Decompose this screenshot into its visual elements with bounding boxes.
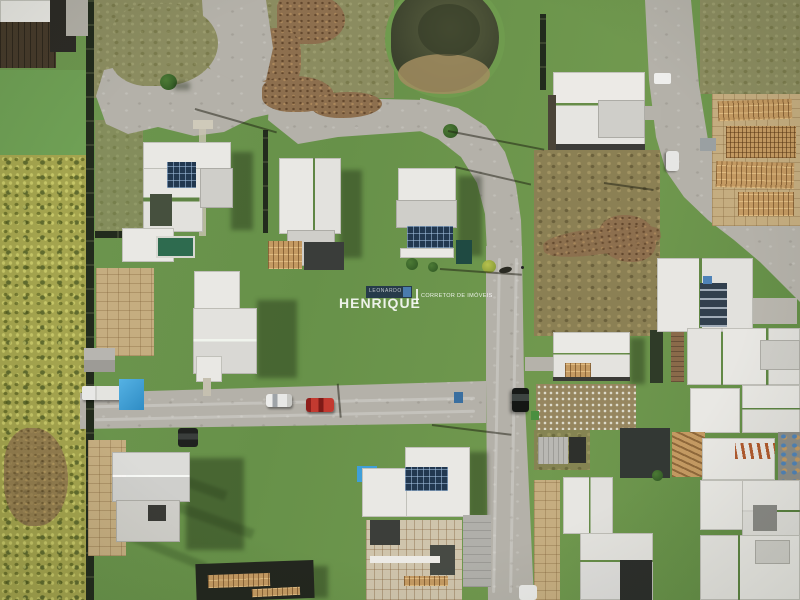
pond-dark-water — [418, 4, 480, 56]
debris-mixed — [778, 432, 800, 480]
construction-dark-patch — [370, 520, 400, 545]
lumber-framing — [726, 126, 796, 158]
aerial-photo: LEONARDO HENRIQUE CORRETOR DE IMÓVEIS — [0, 0, 800, 600]
house-shadow — [231, 152, 253, 230]
house-roof-section — [760, 340, 800, 370]
car-black — [512, 388, 529, 412]
house-roof — [0, 0, 52, 24]
house-roof — [563, 477, 613, 534]
fence-vertical-mid — [263, 130, 268, 233]
bright-grass-west — [0, 70, 88, 160]
scrub-strip-left — [0, 155, 86, 600]
hedge-dark — [650, 330, 663, 383]
house-roof-mid — [396, 200, 457, 228]
tree-shadow — [174, 82, 190, 90]
construction-dark-section — [304, 242, 344, 270]
lumber-framing — [716, 161, 795, 189]
watermark-name: HENRIQUE — [339, 295, 421, 311]
van-white — [654, 73, 671, 84]
house-roof — [194, 271, 240, 311]
driveway — [525, 357, 553, 371]
dry-grass-top-right-corner — [700, 0, 800, 94]
utility-pole — [521, 266, 524, 269]
car-white-right-road — [666, 151, 679, 171]
driveway — [753, 298, 797, 324]
lumber-framing — [718, 99, 793, 122]
wood-walkway — [671, 332, 684, 382]
car-white-bottom — [519, 585, 537, 600]
construction-lumber — [268, 241, 302, 269]
watermark-divider — [416, 289, 418, 304]
house-roof — [690, 388, 740, 433]
scrub-brown-patch — [4, 428, 68, 526]
rust-debris — [735, 443, 775, 459]
car-dark — [178, 428, 198, 447]
garage-door-dark — [620, 560, 652, 600]
lumber-pile — [404, 576, 448, 586]
watermark-badge-text: LEONARDO — [369, 288, 402, 294]
site-shed — [700, 138, 716, 151]
lumber-stack — [738, 192, 794, 216]
watermark-tagline: CORRETOR DE IMÓVEIS — [421, 293, 493, 299]
tarp-blue — [119, 379, 144, 410]
lumber-debris — [672, 432, 705, 477]
courtyard-dark — [150, 194, 172, 226]
rooftop-blue-item — [703, 276, 712, 284]
lumber-pile — [208, 573, 270, 588]
pool-covered — [456, 240, 472, 264]
shed-roof — [84, 348, 115, 372]
house-shadow — [186, 458, 244, 550]
building-dark-roof — [620, 428, 670, 478]
house-shadow — [468, 452, 488, 518]
driveway — [645, 106, 661, 120]
car-red — [306, 398, 334, 412]
house-roof — [742, 385, 800, 433]
house-dark-west-wall — [548, 95, 556, 150]
roof-opening-dark — [148, 505, 166, 521]
paver-grid-lot — [536, 384, 636, 430]
house-dark-edge — [553, 377, 630, 381]
trash-bin-blue — [454, 392, 463, 403]
house-shadow — [630, 338, 645, 384]
house-roof-wing — [200, 168, 233, 208]
garden-bush — [652, 470, 663, 481]
house-shadow — [257, 300, 297, 378]
solar-panels — [407, 226, 453, 248]
house-roof — [279, 158, 341, 234]
solar-panels — [167, 162, 196, 188]
pavement — [66, 0, 88, 36]
construction-white-beam — [370, 556, 440, 563]
roof-gray-panel — [755, 540, 790, 564]
sand-strip — [534, 480, 560, 600]
fence-near-pond-house — [540, 14, 546, 90]
walkway-steps — [193, 120, 213, 129]
shed-dark — [569, 437, 586, 463]
shed-roof — [538, 437, 568, 464]
stone-yard — [96, 268, 154, 356]
solar-panels — [405, 467, 448, 491]
dry-grass-mid-left — [95, 120, 143, 232]
car-white — [266, 394, 292, 407]
garden-bush — [428, 262, 438, 272]
swimming-pool — [156, 236, 195, 258]
house-roof — [112, 452, 190, 502]
house-roof-section — [598, 100, 645, 138]
house-roof-wing — [362, 468, 407, 517]
trash-bin-green — [531, 411, 539, 420]
roof-dark-panel — [753, 505, 777, 531]
entry-path — [203, 378, 211, 396]
house-dark-roof — [0, 22, 56, 68]
garden-bush — [406, 258, 418, 270]
skylight-band — [700, 283, 727, 327]
house-dark-edge — [553, 144, 645, 150]
house-roof-strip — [400, 248, 454, 258]
pond-mud-bank — [398, 54, 490, 94]
house-roof — [398, 168, 456, 202]
garage-roof-gray — [463, 515, 491, 587]
